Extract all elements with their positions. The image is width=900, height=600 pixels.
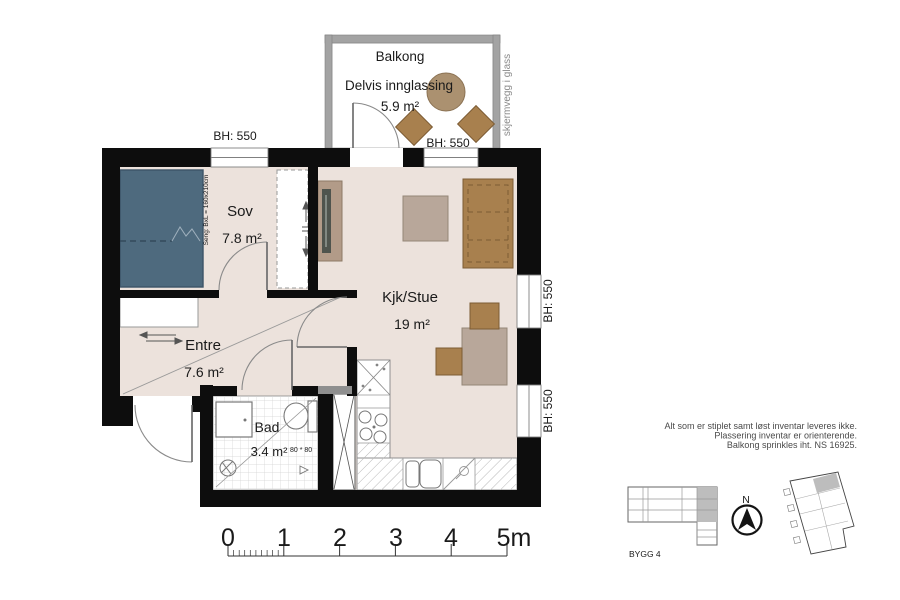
north-arrow: N (733, 494, 762, 535)
bedroom-area: 7.8 m² (222, 230, 262, 246)
scale-bar: 0 1 2 3 4 5m (221, 524, 531, 556)
north-label: N (742, 494, 750, 506)
living-window-top (424, 148, 478, 167)
living-title: Kjk/Stue (382, 289, 438, 306)
dining-table (462, 328, 507, 385)
key-plan-building-label: BYGG 4 (629, 549, 661, 559)
key-plan-building: BYGG 4 (628, 487, 717, 559)
bathroom-sink (216, 402, 252, 437)
counter-hatch-3 (475, 458, 517, 490)
kitchen-sink (406, 460, 441, 488)
living-window-right-upper (517, 275, 541, 328)
sofa (463, 179, 513, 268)
shower-size-label: 80 * 80 (290, 447, 312, 454)
balcony-door-opening (350, 148, 403, 167)
floor-plan-drawing: Balkong Delvis innglassing 5.9 m² BH: 55… (0, 0, 900, 600)
coffee-table (403, 196, 448, 241)
living-area: 19 m² (394, 316, 430, 332)
right-window-sill-upper: BH: 550 (541, 279, 555, 323)
floor-plan-canvas: Balkong Delvis innglassing 5.9 m² BH: 55… (0, 0, 900, 600)
scale-tick-1: 1 (277, 524, 291, 552)
bedroom-title: Sov (227, 203, 253, 220)
bed-size-note: Seng: BxL = 160x210cm (203, 175, 210, 246)
shaft (333, 394, 355, 490)
scale-tick-3: 3 (389, 524, 403, 552)
entre-wardrobe (120, 297, 198, 327)
counter-hatch-1 (357, 443, 390, 458)
key-plan-highlight-unit (697, 487, 717, 522)
bedroom-window (211, 148, 268, 167)
scale-tick-0: 0 (221, 524, 235, 552)
note-line-3: Balkong sprinkles iht. NS 16925. (727, 440, 857, 450)
balcony-subtitle: Delvis innglassing (345, 78, 453, 93)
sink-drain-dot (244, 419, 247, 422)
balcony-title: Balkong (376, 49, 425, 64)
glass-wall-note: skjermvegg i glass (502, 54, 513, 136)
right-window-sill-lower: BH: 550 (541, 389, 555, 433)
living-window-right-lower (517, 385, 541, 437)
bedroom-window-sill-label: BH: 550 (213, 129, 257, 143)
scale-tick-4: 4 (444, 524, 458, 552)
key-plan-site (783, 472, 854, 554)
bathroom (213, 396, 318, 490)
bed (120, 170, 203, 287)
scale-tick-2: 2 (333, 524, 347, 552)
balcony-sill-label: BH: 550 (426, 136, 470, 150)
balcony-area: 5.9 m² (381, 99, 420, 114)
scale-tick-5: 5m (497, 524, 532, 552)
scale-bar-numbers: 0 1 2 3 4 5m (221, 524, 531, 552)
bathroom-area: 3.4 m² (251, 444, 289, 459)
bedroom-wardrobe (277, 170, 308, 288)
shaft-top-sill (318, 386, 352, 394)
entry-door (135, 405, 192, 462)
entre-area: 7.6 m² (184, 364, 224, 380)
note-line-1: Alt som er stiplet samt løst inventar le… (664, 421, 857, 431)
note-line-2: Plassering inventar er orienterende. (714, 431, 857, 441)
counter-hatch-2 (357, 458, 403, 490)
disclaimer-notes: Alt som er stiplet samt løst inventar le… (664, 421, 857, 450)
bathroom-title: Bad (255, 419, 280, 435)
entre-title: Entre (185, 337, 221, 354)
